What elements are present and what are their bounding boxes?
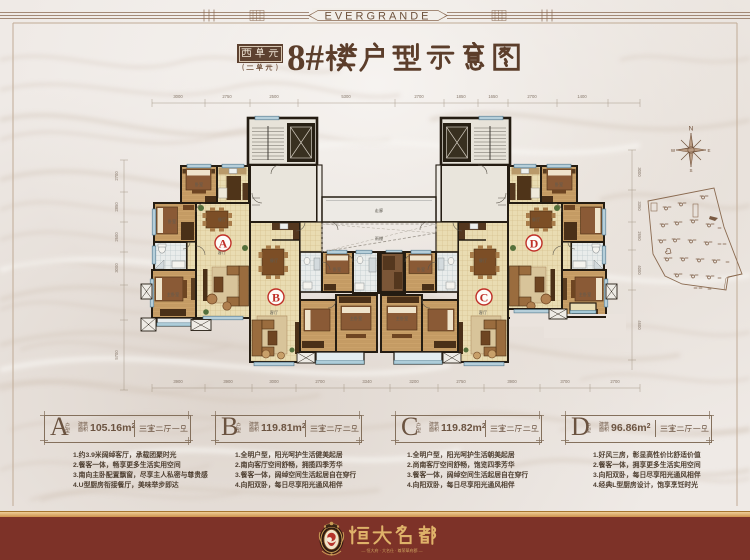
svg-text:1650: 1650 [488, 94, 498, 99]
svg-text:2650: 2650 [637, 231, 642, 241]
svg-text:3340: 3340 [362, 379, 372, 384]
svg-text:3350: 3350 [637, 201, 642, 211]
svg-text:3900: 3900 [507, 379, 517, 384]
svg-text:卧室: 卧室 [333, 266, 341, 273]
svg-text:E: E [707, 148, 710, 153]
svg-text:4000: 4000 [637, 265, 642, 275]
svg-text:2750: 2750 [456, 379, 466, 384]
svg-text:W: W [671, 148, 676, 153]
svg-text:餐厅: 餐厅 [218, 216, 226, 223]
svg-text:卧室: 卧室 [195, 181, 203, 188]
svg-text:2600: 2600 [114, 232, 119, 242]
svg-text:B: B [272, 291, 280, 305]
svg-text:5300: 5300 [341, 94, 351, 99]
svg-text:卧室: 卧室 [417, 266, 425, 273]
svg-text:主卧室: 主卧室 [167, 291, 180, 298]
svg-text:卧室: 卧室 [168, 218, 176, 225]
svg-text:2700: 2700 [610, 379, 620, 384]
svg-text:3000: 3000 [637, 167, 642, 177]
svg-text:3200: 3200 [409, 379, 419, 384]
svg-text:S: S [689, 168, 692, 173]
svg-text:N: N [689, 126, 694, 133]
svg-text:3000: 3000 [269, 379, 279, 384]
svg-text:客厅: 客厅 [218, 249, 226, 256]
svg-text:2700: 2700 [114, 171, 119, 181]
svg-text:3000: 3000 [173, 94, 183, 99]
svg-text:A: A [219, 237, 228, 251]
svg-text:餐厅: 餐厅 [479, 257, 487, 264]
svg-text:主卧室: 主卧室 [579, 291, 592, 298]
svg-text:3000: 3000 [114, 263, 119, 273]
svg-text:2850: 2850 [114, 202, 119, 212]
svg-text:卧室: 卧室 [555, 181, 563, 188]
svg-text:2500: 2500 [269, 94, 279, 99]
svg-text:C: C [480, 291, 489, 305]
svg-text:2700: 2700 [527, 94, 537, 99]
svg-text:餐厅: 餐厅 [532, 216, 540, 223]
svg-text:2700: 2700 [315, 379, 325, 384]
svg-text:D: D [530, 237, 539, 251]
svg-text:3700: 3700 [560, 379, 570, 384]
svg-text:客厅: 客厅 [270, 309, 278, 316]
svg-text:1400: 1400 [577, 94, 587, 99]
svg-text:主卧室: 主卧室 [350, 315, 363, 322]
svg-text:4600: 4600 [637, 320, 642, 330]
svg-text:主卧室: 主卧室 [396, 315, 409, 322]
svg-text:2750: 2750 [222, 94, 232, 99]
svg-text:2700: 2700 [414, 94, 424, 99]
svg-text:3900: 3900 [173, 379, 183, 384]
svg-text:客厅: 客厅 [479, 309, 487, 316]
svg-text:1850: 1850 [456, 94, 466, 99]
svg-text:5700: 5700 [114, 350, 119, 360]
svg-text:雨棚: 雨棚 [375, 235, 383, 242]
svg-text:走廊: 走廊 [375, 207, 383, 214]
svg-text:餐厅: 餐厅 [270, 257, 278, 264]
svg-text:3900: 3900 [223, 379, 233, 384]
